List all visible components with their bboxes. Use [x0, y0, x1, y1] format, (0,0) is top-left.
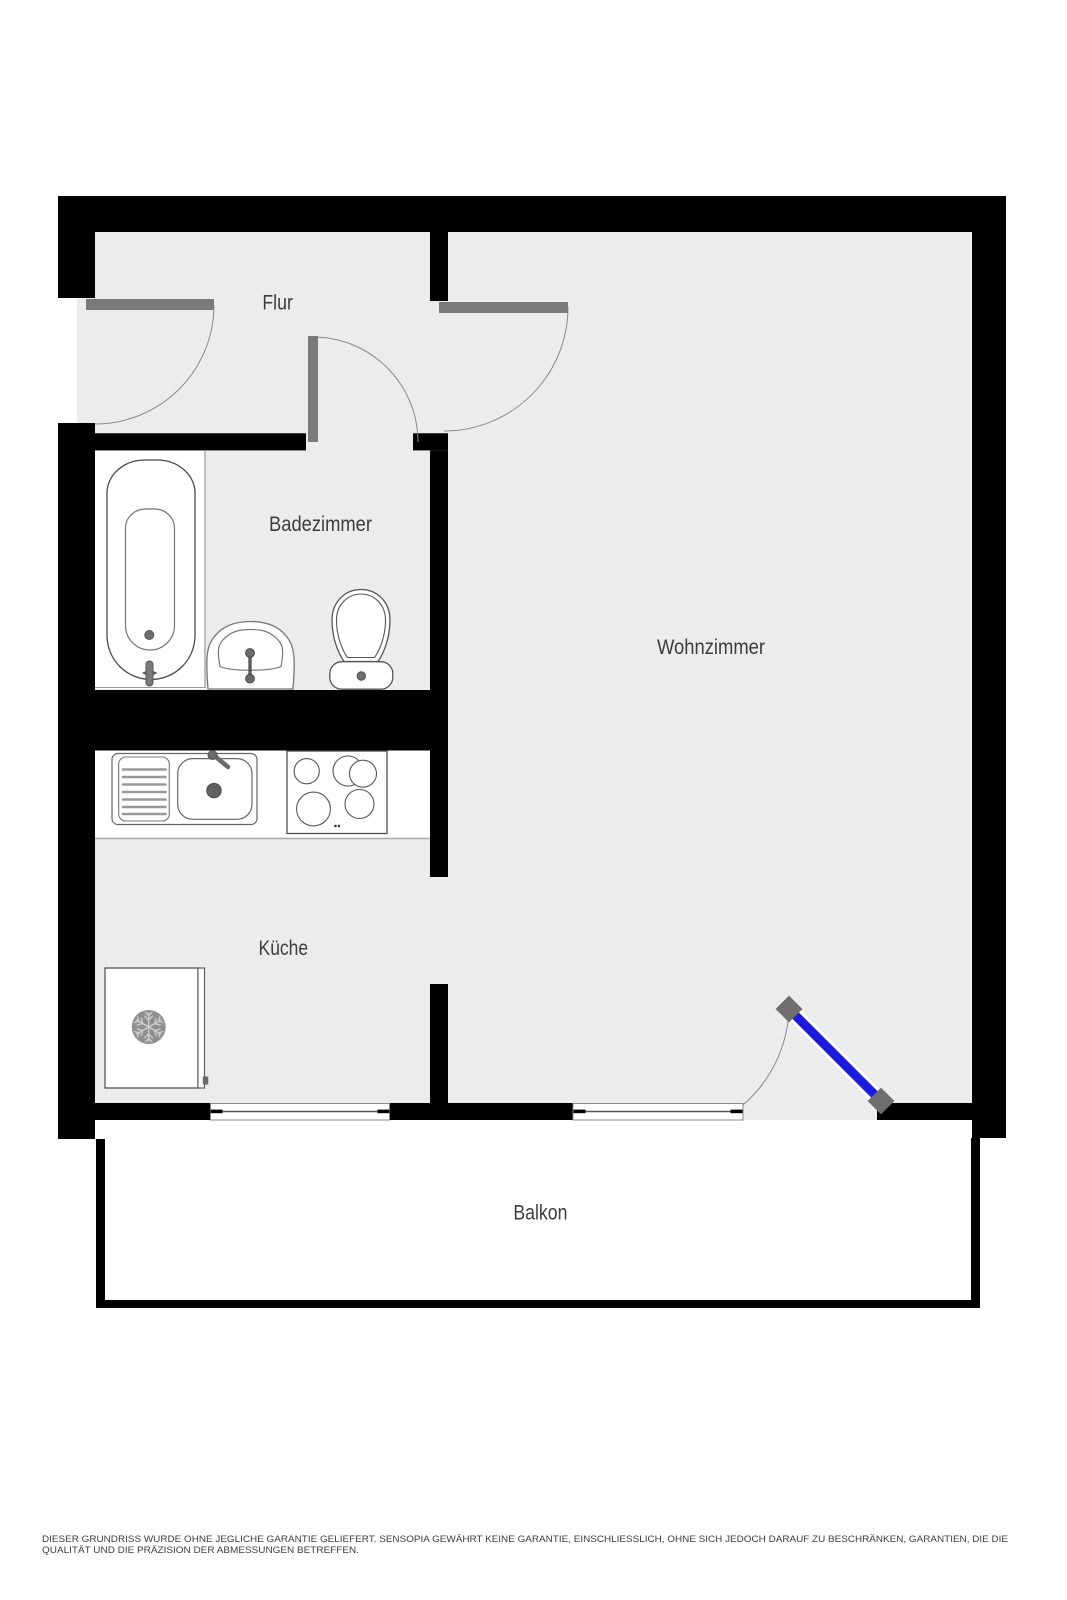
svg-text:Wohnzimmer: Wohnzimmer	[657, 636, 765, 659]
svg-text:Balkon: Balkon	[513, 1202, 567, 1225]
svg-text:DIESER GRUNDRISS WURDE OHNE JE: DIESER GRUNDRISS WURDE OHNE JEGLICHE GAR…	[42, 1534, 1008, 1544]
svg-text:QUALITÄT UND DIE PRÄZISION DER: QUALITÄT UND DIE PRÄZISION DER ABMESSUNG…	[42, 1545, 359, 1555]
svg-text:Küche: Küche	[259, 937, 309, 960]
svg-text:Badezimmer: Badezimmer	[269, 513, 372, 536]
svg-text:Flur: Flur	[262, 292, 293, 315]
